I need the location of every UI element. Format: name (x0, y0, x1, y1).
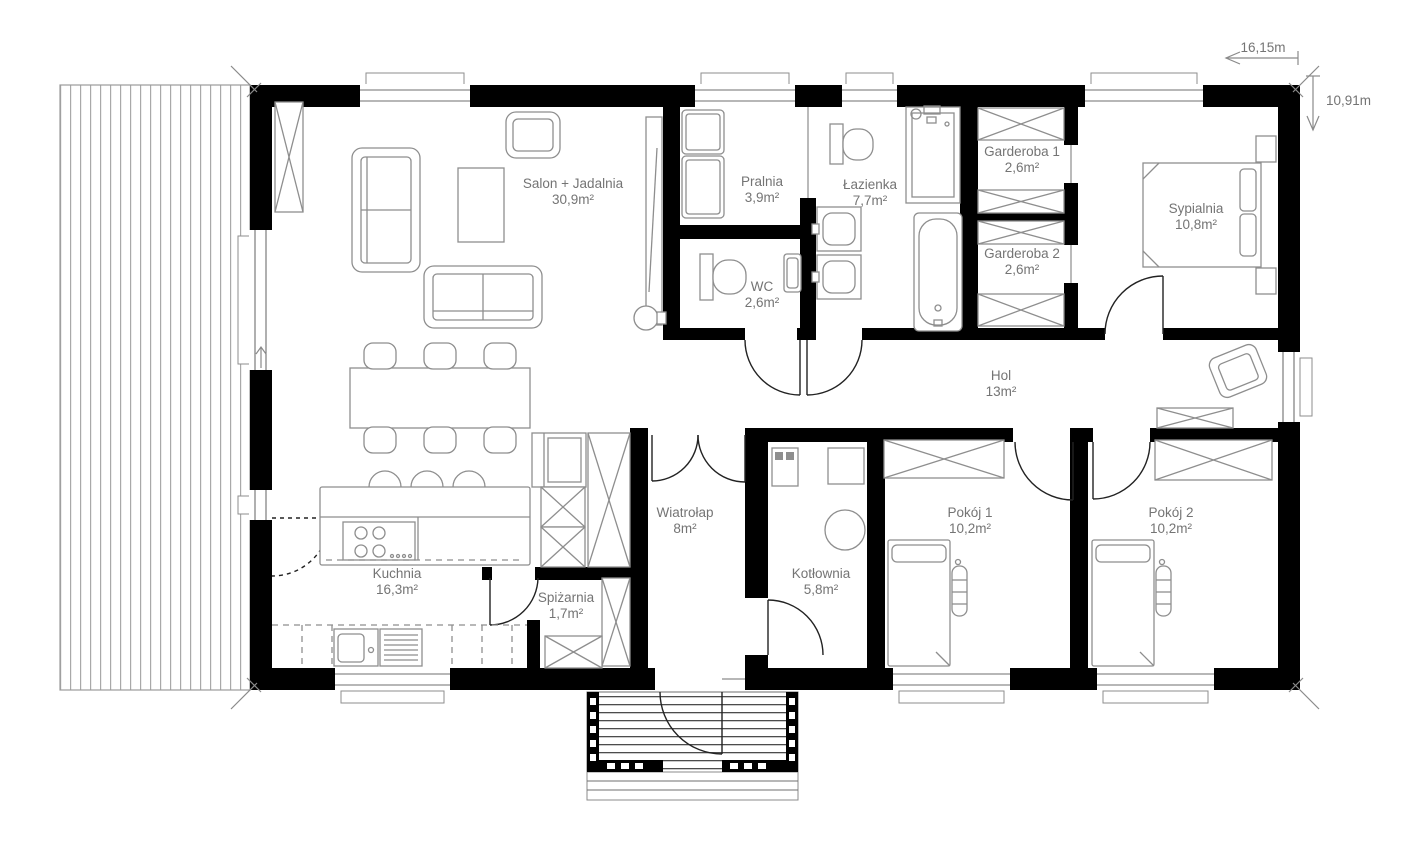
pokoj1-wardrobe-icon (884, 440, 1004, 478)
tv-cabinet-icon (646, 117, 662, 325)
room-label-wiatrolap: Wiatrołap (656, 505, 713, 520)
room-label-wc: WC (751, 279, 774, 294)
bookcase-icon (275, 102, 303, 212)
hol-wardrobe-icon (1157, 408, 1233, 428)
room-area-wiatrolap: 8m² (673, 521, 697, 536)
room-area-lazienka: 7,7m² (853, 193, 888, 208)
tall-cabinet-icon (532, 433, 586, 487)
room-area-pokoj1: 10,2m² (949, 521, 992, 536)
armchair-icon (506, 112, 560, 158)
pokoj2-wardrobe-icon (1155, 440, 1272, 480)
kitchen-sink-icon (334, 629, 378, 666)
room-area-garderoba1: 2,6m² (1005, 160, 1040, 175)
dining-table-icon (350, 368, 530, 428)
boiler-icon (772, 448, 865, 550)
bathtub-icon (914, 213, 962, 331)
room-area-kotlownia: 5,8m² (804, 582, 839, 597)
pokoj2-radiator-icon (1156, 560, 1171, 617)
room-label-pokoj2: Pokój 2 (1148, 505, 1193, 520)
window-terrace-glazing (238, 230, 273, 370)
wardrobe-stack-icon (541, 487, 585, 567)
shower-icon (906, 106, 960, 203)
terrace-deck (60, 85, 250, 690)
room-label-pralnia: Pralnia (741, 174, 784, 189)
dimension-height: 10,91m (1306, 76, 1371, 130)
room-area-hol: 13m² (986, 384, 1017, 399)
nightstand-icon (1256, 268, 1276, 294)
porch-railing-left (587, 692, 599, 772)
porch-railing-right (786, 692, 798, 772)
room-area-kuchnia: 16,3m² (376, 582, 419, 597)
bathroom-sinks-icon (812, 207, 861, 299)
wc-sink-icon (784, 254, 801, 292)
window-pokoj2 (1097, 667, 1214, 703)
window-hol (1277, 352, 1312, 422)
room-label-kuchnia: Kuchnia (373, 566, 422, 581)
window-kuchnia (335, 667, 450, 703)
pokoj2-bed-icon (1092, 540, 1154, 666)
room-area-salon: 30,9m² (552, 192, 595, 207)
floor-plan-drawing: Salon + Jadalnia 30,9m² Pralnia 3,9m² WC… (0, 0, 1408, 847)
room-area-wc: 2,6m² (745, 295, 780, 310)
room-label-garderoba1: Garderoba 1 (984, 144, 1060, 159)
coffee-table-icon (458, 168, 504, 242)
room-label-sypialnia: Sypialnia (1169, 201, 1224, 216)
wardrobe-column-icon (588, 433, 630, 567)
floor-plan-page: Salon + Jadalnia 30,9m² Pralnia 3,9m² WC… (0, 0, 1408, 847)
entrance-door-gap (655, 667, 745, 691)
kitchen-island-icon (320, 471, 530, 565)
door-wc (745, 340, 800, 395)
room-area-garderoba2: 2,6m² (1005, 262, 1040, 277)
door-wiatrolap-double (652, 435, 745, 482)
room-area-pokoj2: 10,2m² (1150, 521, 1193, 536)
sofa-vertical-icon (352, 148, 420, 272)
pokoj1-bed-icon (888, 540, 950, 666)
dimension-height-label: 10,91m (1326, 93, 1371, 108)
door-pokoj2 (1093, 442, 1150, 499)
wc-toilet-icon (700, 254, 746, 300)
room-area-spizarnia: 1,7m² (549, 606, 584, 621)
dishwasher-icon (380, 629, 422, 666)
hol-armchair-icon (1207, 342, 1269, 400)
room-label-kotlownia: Kotłownia (792, 566, 851, 581)
room-label-garderoba2: Garderoba 2 (984, 246, 1060, 261)
dimension-width-label: 16,15m (1240, 40, 1285, 55)
dimension-width: 16,15m (1226, 40, 1298, 65)
door-lazienka (807, 340, 862, 395)
room-label-spizarnia: Spiżarnia (538, 590, 595, 605)
room-label-lazienka: Łazienka (843, 177, 898, 192)
window-lazienka (842, 73, 897, 108)
door-kotlownia (768, 600, 823, 655)
sofa-horizontal-icon (424, 266, 542, 328)
window-pralnia (695, 73, 795, 108)
room-label-pokoj1: Pokój 1 (947, 505, 992, 520)
room-area-pralnia: 3,9m² (745, 190, 780, 205)
door-spizarnia (490, 578, 538, 625)
nightstand-icon (1256, 136, 1276, 162)
room-area-sypialnia: 10,8m² (1175, 217, 1218, 232)
window-pokoj1 (893, 667, 1010, 703)
door-sypialnia (1105, 276, 1163, 334)
porch-steps (587, 772, 798, 800)
door-pokoj1 (1015, 442, 1073, 500)
room-label-salon: Salon + Jadalnia (523, 176, 624, 191)
kitchen-counter-icon (272, 625, 527, 666)
washer-dryer-icon (682, 110, 724, 218)
window-sypialnia (1085, 73, 1203, 108)
pokoj1-radiator-icon (952, 560, 967, 617)
room-label-hol: Hol (991, 368, 1011, 383)
window-salon (360, 73, 470, 108)
toilet-icon (830, 124, 873, 164)
